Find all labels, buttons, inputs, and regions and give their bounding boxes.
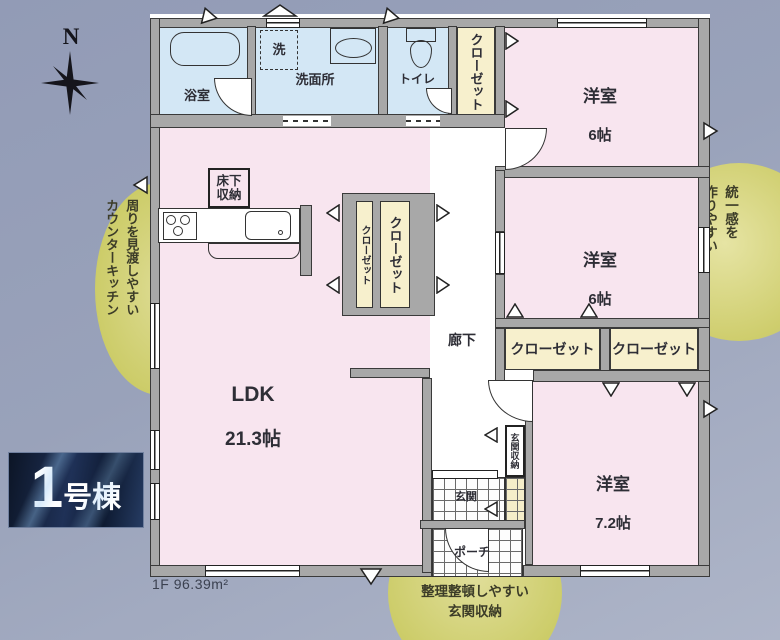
washing-machine-box: 洗 xyxy=(260,30,298,70)
door-swing-icon xyxy=(326,204,340,222)
floor-area-label: 1F 96.39m² xyxy=(152,576,229,592)
entrance-step xyxy=(432,470,498,479)
wall xyxy=(495,166,710,178)
wall xyxy=(422,378,432,573)
closet-top-label: クローゼット xyxy=(457,26,495,118)
burner xyxy=(173,226,183,236)
door-swing-icon xyxy=(505,32,519,50)
window xyxy=(698,227,710,273)
window xyxy=(150,430,160,470)
door-swing-icon xyxy=(484,427,498,443)
kitchen-pillar xyxy=(300,205,312,276)
bathtub xyxy=(170,32,240,66)
bedroom-top-label: 洋室 6帖 xyxy=(540,66,660,166)
vanity-sink xyxy=(335,38,372,58)
unit-badge: 1 号棟 xyxy=(8,452,144,528)
wall xyxy=(698,18,710,577)
porch-label: ポーチ xyxy=(432,545,512,560)
bedroom-top-name: 洋室 xyxy=(540,86,660,107)
window xyxy=(150,483,160,520)
sliding-door xyxy=(495,232,505,274)
ldk-name: LDK xyxy=(193,382,313,408)
door-swing-icon xyxy=(602,382,620,397)
door-swing-icon xyxy=(678,382,696,397)
burner xyxy=(180,215,190,225)
window xyxy=(150,303,160,369)
vent-icon xyxy=(131,174,149,196)
entrance-label: 玄関 xyxy=(436,491,496,505)
wall xyxy=(525,420,533,565)
window xyxy=(266,18,300,28)
vent-icon xyxy=(262,3,298,18)
bedroom-bottom-name: 洋室 xyxy=(553,474,673,495)
door-swing-icon xyxy=(436,204,450,222)
bathroom-label: 浴室 xyxy=(167,88,227,104)
vent-icon xyxy=(702,120,720,142)
ldk-floor xyxy=(158,126,430,565)
ldk-label: LDK 21.3帖 xyxy=(193,362,313,472)
wall xyxy=(350,368,430,378)
threshold xyxy=(406,116,440,126)
vent-icon xyxy=(358,567,384,587)
door-swing-icon xyxy=(506,303,524,318)
wall xyxy=(495,170,505,232)
sink-drain xyxy=(278,230,283,235)
callout-kitchen-text: 周りを見渡しやすい カウンターキッチン xyxy=(101,199,141,379)
door-swing-icon xyxy=(436,276,450,294)
closet-row-right-label: クローゼット xyxy=(610,328,698,370)
bedroom-mid-label: 洋室 6帖 xyxy=(540,230,660,330)
underfloor-storage-box: 床下 収納 xyxy=(208,168,250,208)
wall xyxy=(495,328,505,382)
counter-ledge xyxy=(208,243,300,259)
washroom-label: 洗面所 xyxy=(265,72,365,88)
compass-icon xyxy=(38,50,102,116)
shoe-storage-floor xyxy=(505,477,525,521)
threshold xyxy=(283,116,331,126)
burner xyxy=(166,215,176,225)
window xyxy=(580,565,650,577)
bedroom-mid-size: 6帖 xyxy=(540,291,660,310)
corridor-label: 廊下 xyxy=(432,332,492,350)
bedroom-top-size: 6帖 xyxy=(540,127,660,146)
door-swing-icon xyxy=(326,276,340,294)
north-label: N xyxy=(56,24,86,50)
unit-number: 1 xyxy=(31,453,63,523)
floorplan-page: 周りを見渡しやすい カウンターキッチン 統一感を 作りやすい 洋室のみの間取 整… xyxy=(0,0,780,640)
door-swing-icon xyxy=(505,100,519,118)
callout-entrance-storage-text: 整理整頓しやすい 玄関収納 xyxy=(388,582,562,621)
ldk-size: 21.3帖 xyxy=(193,428,313,452)
wall xyxy=(533,370,710,382)
vent-icon xyxy=(702,398,720,420)
wall xyxy=(495,26,505,118)
window xyxy=(557,18,647,28)
bedroom-bottom-label: 洋室 7.2帖 xyxy=(553,454,673,554)
kitchen-sink xyxy=(245,211,291,240)
toilet-label: トイレ xyxy=(387,72,447,87)
wall xyxy=(600,328,610,372)
bedroom-mid-name: 洋室 xyxy=(540,250,660,271)
closet-cell: クローゼット xyxy=(356,201,373,308)
entrance-storage-box: 玄関収納 xyxy=(505,425,525,477)
unit-suffix: 号棟 xyxy=(63,474,121,516)
bedroom-bottom-size: 7.2帖 xyxy=(553,515,673,534)
washing-machine-label: 洗 xyxy=(272,42,285,58)
floorplan: 洗 クローゼット クローゼット 玄関収納 床下 収納 xyxy=(150,14,710,577)
closet-cell: クローゼット xyxy=(380,201,410,308)
closet-row-left-label: クローゼット xyxy=(505,328,600,370)
